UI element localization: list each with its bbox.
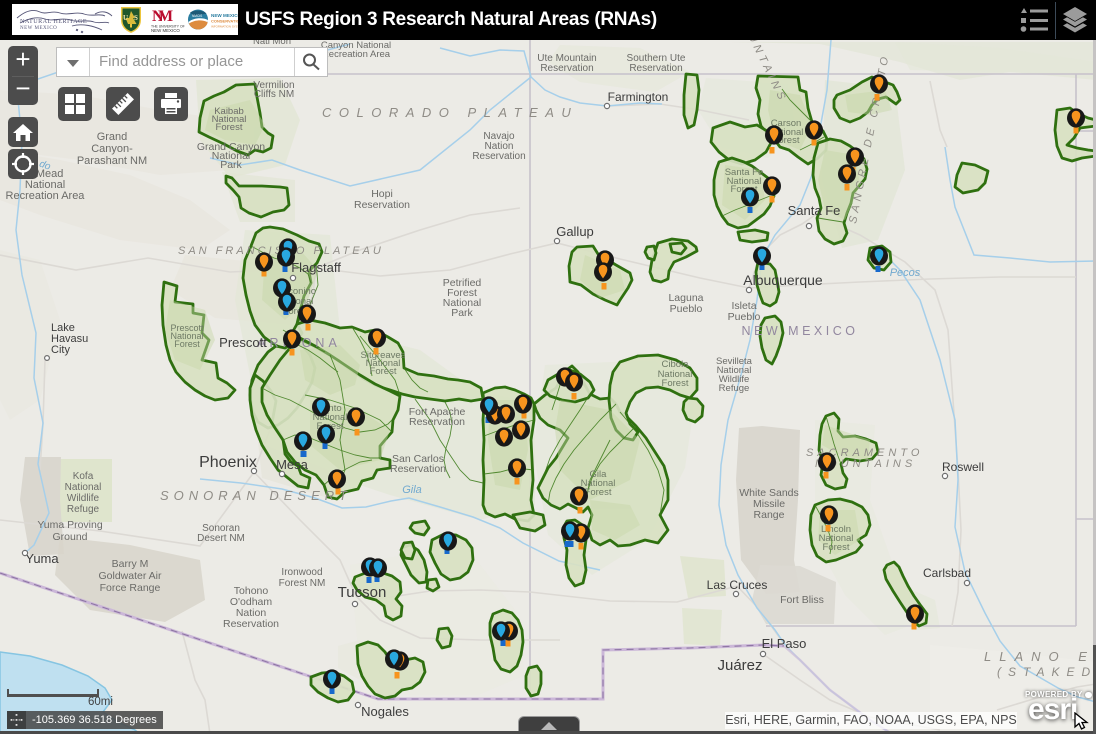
svg-text:COLORADO PLATEAU: COLORADO PLATEAU	[322, 105, 578, 120]
svg-text:SevilletaNationalWildlifeRefug: SevilletaNationalWildlifeRefuge	[716, 356, 753, 394]
svg-text:Pecos: Pecos	[890, 267, 921, 279]
svg-text:Las Cruces: Las Cruces	[707, 578, 768, 592]
svg-text:NEW MEXICO: NEW MEXICO	[211, 13, 238, 18]
svg-text:NEW MEXICO: NEW MEXICO	[20, 26, 57, 31]
svg-text:Prescott: Prescott	[219, 335, 267, 350]
svg-text:Fort ApacheReservation: Fort ApacheReservation	[409, 406, 466, 428]
svg-text:El Paso: El Paso	[762, 636, 807, 651]
svg-text:LincolnNationalForest: LincolnNationalForest	[819, 524, 854, 553]
svg-text:Fort Bliss: Fort Bliss	[780, 594, 824, 606]
svg-text:CONSERVATION: CONSERVATION	[211, 19, 238, 24]
svg-text:KaibabNationalForest: KaibabNationalForest	[212, 106, 247, 133]
svg-text:IsletaPueblo: IsletaPueblo	[728, 300, 761, 323]
svg-text:Nogales: Nogales	[361, 704, 409, 719]
svg-text:Carlsbad: Carlsbad	[923, 566, 971, 580]
svg-text:NEW MEXICO: NEW MEXICO	[151, 28, 180, 33]
svg-text:VermilionCliffs NM: VermilionCliffs NM	[253, 80, 294, 100]
svg-text:Gallup: Gallup	[556, 224, 594, 239]
svg-text:Gila: Gila	[402, 484, 422, 496]
svg-text:PrescottNationalForest: PrescottNationalForest	[170, 323, 204, 349]
svg-text:M: M	[158, 8, 173, 25]
svg-text:Juárez: Juárez	[717, 657, 762, 674]
svg-text:NMCIS: NMCIS	[192, 14, 202, 18]
svg-text:IronwoodForest NM: IronwoodForest NM	[279, 567, 326, 589]
svg-text:Mesa: Mesa	[276, 457, 309, 472]
svg-text:Ute MountainReservation: Ute MountainReservation	[537, 53, 596, 74]
svg-text:SONORAN DESERT: SONORAN DESERT	[160, 488, 352, 503]
svg-text:Southern UteReservation: Southern UteReservation	[627, 53, 686, 74]
svg-text:LLANO ES: LLANO ES	[984, 649, 1096, 664]
svg-text:Santa Fe: Santa Fe	[788, 203, 841, 218]
svg-text:San CarlosReservation: San CarlosReservation	[390, 453, 446, 475]
svg-text:NATURAL HERITAGE: NATURAL HERITAGE	[20, 18, 87, 25]
svg-text:CibolaNationalForest: CibolaNationalForest	[658, 359, 693, 389]
svg-text:Farmington: Farmington	[608, 90, 669, 104]
svg-text:Yuma: Yuma	[25, 551, 59, 566]
svg-text:Phoenix: Phoenix	[199, 454, 257, 471]
svg-text:NEW MEXICO: NEW MEXICO	[742, 324, 859, 338]
svg-text:(STAKED: (STAKED	[997, 665, 1096, 679]
svg-text:LagunaPueblo: LagunaPueblo	[668, 292, 703, 315]
svg-text:Flagstaff: Flagstaff	[291, 260, 341, 275]
svg-text:Tucson: Tucson	[338, 584, 387, 601]
svg-text:INFORMATION SYSTEM: INFORMATION SYSTEM	[211, 25, 238, 29]
svg-text:U: U	[123, 14, 128, 22]
svg-text:Roswell: Roswell	[942, 460, 984, 474]
svg-text:SonoranDesert NM: SonoranDesert NM	[197, 523, 245, 544]
svg-text:S: S	[134, 14, 138, 22]
svg-text:Albuquerque: Albuquerque	[743, 272, 823, 288]
